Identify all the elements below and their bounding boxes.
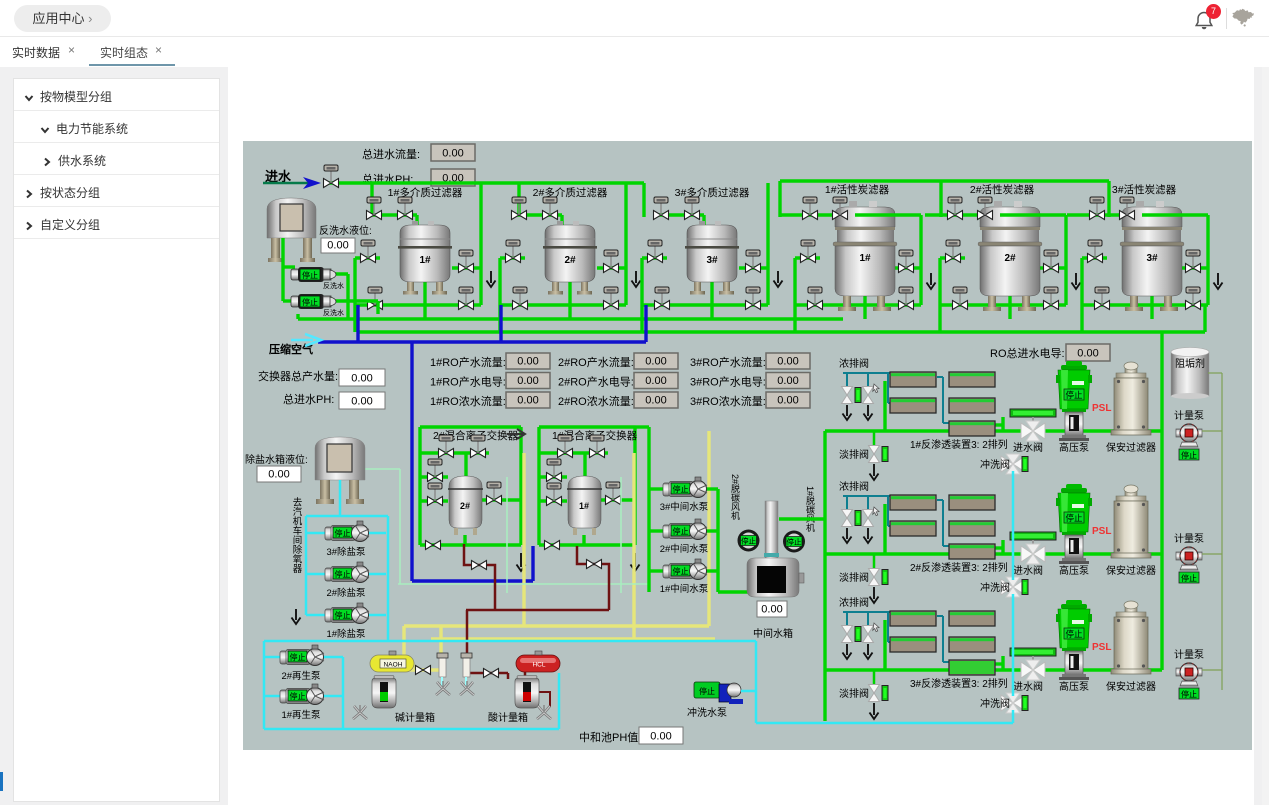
svg-text:1#再生泵: 1#再生泵 [281,709,321,721]
svg-text:冲洗阀: 冲洗阀 [980,581,1010,594]
svg-text:浓排阀: 浓排阀 [839,357,869,370]
svg-text:保安过滤器: 保安过滤器 [1106,680,1156,693]
svg-text:0.00: 0.00 [777,395,798,407]
svg-text:2#: 2# [564,255,576,266]
svg-text:总进水PH:: 总进水PH: [283,392,334,406]
svg-text:反洗水: 反洗水 [323,281,344,290]
svg-text:3#: 3# [1146,253,1158,264]
svg-text:3#活性炭滤器: 3#活性炭滤器 [1112,183,1177,196]
svg-text:中间水箱: 中间水箱 [753,627,793,640]
svg-text:3#中间水泵: 3#中间水泵 [660,501,709,513]
svg-text:0.00: 0.00 [645,395,666,407]
svg-text:淡排阀: 淡排阀 [839,448,869,461]
svg-text:停止: 停止 [699,686,715,696]
svg-text:0.00: 0.00 [777,356,798,368]
svg-text:0.00: 0.00 [351,396,372,408]
svg-text:进水阀: 进水阀 [1013,441,1043,454]
svg-text:酸计量箱: 酸计量箱 [488,711,528,724]
svg-text:1#: 1# [859,253,871,264]
svg-text:0.00: 0.00 [1077,348,1098,360]
svg-text:2#除盐泵: 2#除盐泵 [326,587,366,599]
svg-text:2#: 2# [1004,253,1016,264]
svg-text:2#RO产水电导:: 2#RO产水电导: [558,375,634,389]
svg-text:1#RO产水流量:: 1#RO产水流量: [430,355,506,369]
svg-text:高压泵: 高压泵 [1059,564,1089,577]
svg-text:中和池PH值:: 中和池PH值: [579,731,641,744]
svg-text:冲洗阀: 冲洗阀 [980,697,1010,710]
svg-text:PSL: PSL [1092,642,1111,653]
svg-text:淡排阀: 淡排阀 [839,687,869,700]
svg-text:阻垢剂: 阻垢剂 [1175,357,1205,370]
svg-text:停止: 停止 [1181,689,1197,699]
svg-text:2#中间水泵: 2#中间水泵 [660,543,709,555]
svg-text:1#活性炭滤器: 1#活性炭滤器 [825,183,890,196]
svg-text:0.00: 0.00 [268,469,289,481]
svg-text:0.00: 0.00 [761,604,782,616]
svg-text:总进水流量:: 总进水流量: [362,147,420,161]
svg-text:淡排阀: 淡排阀 [839,571,869,584]
svg-text:计量泵: 计量泵 [1174,648,1204,661]
svg-text:1#脱碳风机: 1#脱碳风机 [805,486,815,533]
svg-text:高压泵: 高压泵 [1059,441,1089,454]
svg-text:3#RO产水电导:: 3#RO产水电导: [690,375,766,389]
svg-text:1#: 1# [419,255,431,266]
svg-text:计量泵: 计量泵 [1174,532,1204,545]
svg-text:进水阀: 进水阀 [1013,680,1043,693]
svg-text:3#RO浓水流量:: 3#RO浓水流量: [690,394,766,408]
svg-text:0.00: 0.00 [517,395,538,407]
svg-text:保安过滤器: 保安过滤器 [1106,564,1156,577]
svg-text:0.00: 0.00 [645,356,666,368]
svg-text:0.00: 0.00 [327,240,348,252]
svg-text:3#RO产水流量:: 3#RO产水流量: [690,355,766,369]
svg-text:反洗水: 反洗水 [323,308,344,317]
svg-text:浓排阀: 浓排阀 [839,480,869,493]
svg-text:3#反渗透装置3: 2排列: 3#反渗透装置3: 2排列 [910,677,1008,690]
svg-text:0.00: 0.00 [650,731,671,743]
svg-text:2#再生泵: 2#再生泵 [281,670,321,682]
svg-text:2#反渗透装置3: 2排列: 2#反渗透装置3: 2排列 [910,561,1008,574]
svg-text:3#除盐泵: 3#除盐泵 [326,546,366,558]
svg-text:停止: 停止 [1181,573,1197,583]
svg-text:0.00: 0.00 [517,375,538,387]
svg-text:1#反渗透装置3: 2排列: 1#反渗透装置3: 2排列 [910,438,1008,451]
svg-text:RO总进水电导:: RO总进水电导: [990,346,1065,360]
svg-text:交换器总产水量:: 交换器总产水量: [258,369,338,383]
svg-text:冲洗阀: 冲洗阀 [980,458,1010,471]
svg-text:2#RO浓水流量:: 2#RO浓水流量: [558,394,634,408]
svg-text:1#: 1# [579,501,589,511]
svg-text:进水阀: 进水阀 [1013,564,1043,577]
svg-text:0.00: 0.00 [645,375,666,387]
svg-text:1#除盐泵: 1#除盐泵 [326,628,366,640]
svg-text:0.00: 0.00 [351,373,372,385]
svg-text:2#: 2# [460,501,470,511]
svg-text:浓排阀: 浓排阀 [839,596,869,609]
svg-text:2#RO产水流量:: 2#RO产水流量: [558,355,634,369]
svg-text:计量泵: 计量泵 [1174,409,1204,422]
svg-text:2#活性炭滤器: 2#活性炭滤器 [970,183,1035,196]
svg-text:0.00: 0.00 [517,356,538,368]
svg-text:停止: 停止 [1181,450,1197,460]
svg-text:除盐水箱液位:: 除盐水箱液位: [245,453,308,466]
svg-text:0.00: 0.00 [442,148,463,160]
svg-text:0.00: 0.00 [777,375,798,387]
svg-text:PSL: PSL [1092,403,1111,414]
svg-text:碱计量箱: 碱计量箱 [395,711,435,724]
svg-text:保安过滤器: 保安过滤器 [1106,441,1156,454]
svg-text:冲洗水泵: 冲洗水泵 [687,706,727,719]
svg-text:3#: 3# [706,255,718,266]
svg-text:1#RO浓水流量:: 1#RO浓水流量: [430,394,506,408]
svg-text:PSL: PSL [1092,526,1111,537]
svg-text:1#RO产水电导:: 1#RO产水电导: [430,375,506,389]
svg-text:高压泵: 高压泵 [1059,680,1089,693]
svg-text:反洗水液位:: 反洗水液位: [319,224,372,237]
svg-text:去汽机车间除氧器: 去汽机车间除氧器 [291,496,303,573]
svg-text:1#中间水泵: 1#中间水泵 [660,583,709,595]
svg-text:2#脱碳风机: 2#脱碳风机 [730,474,740,521]
